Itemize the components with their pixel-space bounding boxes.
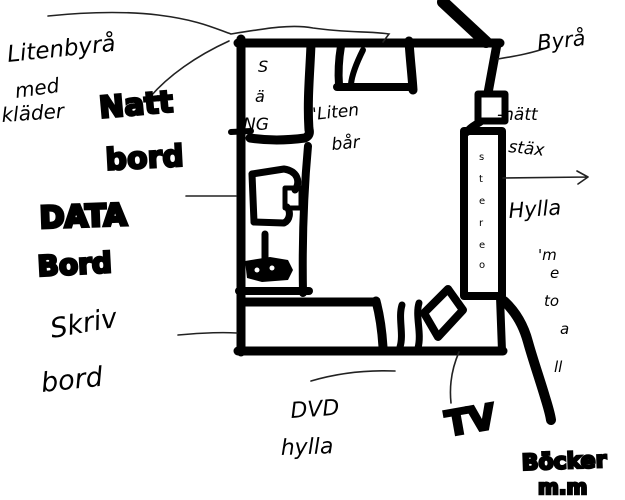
paint-canvas: Litenbyrå med kläder Natt bord DATA Bord…: [0, 0, 625, 500]
writing-desk-connector: [178, 333, 237, 335]
tv-stand-stroke-left: [400, 305, 402, 347]
label-stereo-letter: s: [479, 152, 484, 163]
bed-right-wall: [308, 44, 311, 130]
small-shelf-right-wall: [409, 41, 413, 90]
room-right-wall-top: [488, 44, 497, 93]
label-dvd-shelf-line2: hylla: [280, 434, 334, 461]
chair-blob-speck: [270, 266, 275, 271]
label-shelf-note-letter: to: [544, 292, 559, 310]
tv-screen: [424, 289, 463, 337]
label-writing-desk-line2: bord: [39, 362, 105, 399]
desk-alcove-wall: [303, 146, 308, 293]
label-computer-desk-line1: DATA: [39, 198, 128, 236]
bookshelf-curve: [504, 301, 551, 420]
dresser-diagonal: [443, 2, 486, 42]
small-shelf-divider: [351, 50, 363, 84]
label-stereo-letter: o: [479, 260, 485, 271]
tv-stand-stroke-right: [418, 303, 420, 348]
label-bed-letter: S: [258, 57, 268, 76]
label-wall-cabinet-line2: stäx: [507, 137, 546, 161]
label-small-shelf-line1: 'Liten: [311, 100, 360, 125]
writing-desk-end: [376, 301, 383, 347]
label-bed-letter: ä: [255, 87, 265, 106]
label-books-line2: m.m: [538, 475, 587, 499]
label-bed-letter: NG: [243, 115, 269, 135]
label-nightstand-line1: Natt: [98, 85, 175, 126]
label-stereo-letter: e: [479, 240, 485, 251]
label-small-shelf-line2: bår: [331, 132, 362, 155]
label-nightstand-line2: bord: [105, 139, 185, 178]
floor-plan-sketch: Litenbyrå med kläder Natt bord DATA Bord…: [0, 0, 625, 500]
label-dvd-shelf-line1: DVD: [290, 396, 341, 424]
label-tv: TV: [443, 397, 499, 445]
label-dresser-top: Byrå: [536, 25, 587, 55]
label-dresser-note-line1: Litenbyrå: [6, 29, 117, 68]
label-books-line1: Böcker: [521, 448, 607, 476]
label-dresser-note-line3: kläder: [1, 99, 67, 127]
label-writing-desk-line1: Skriv: [48, 302, 121, 344]
chair-blob: [245, 257, 293, 282]
label-shelf-note-letter: a: [560, 320, 569, 338]
label-stereo-letter: t: [479, 174, 483, 185]
label-stereo-letter: r: [479, 218, 484, 229]
label-shelf-note-letter: ll: [554, 358, 563, 376]
label-shelf: Hylla: [508, 195, 562, 223]
label-wall-cabinet-line1: -nätt: [497, 105, 539, 125]
chair-blob-speck: [255, 268, 260, 273]
dvd-shelf-connector: [311, 371, 395, 381]
label-shelf-note-letter: e: [550, 264, 559, 282]
small-shelf-left-wall: [339, 46, 341, 85]
tv-connector: [450, 352, 459, 403]
shelf-arrow: [503, 171, 588, 184]
label-shelf-note-letter: 'm: [538, 246, 557, 264]
label-stereo-letter: e: [479, 196, 485, 207]
label-computer-desk-line2: Bord: [37, 246, 113, 283]
